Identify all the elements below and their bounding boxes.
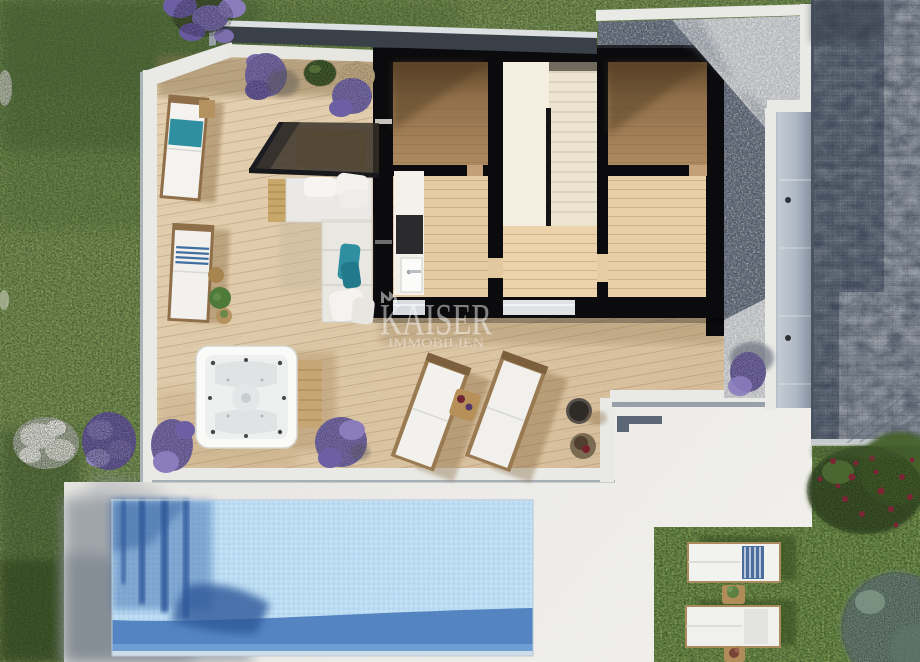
svg-text:IMMOBILIEN: IMMOBILIEN <box>388 335 485 350</box>
